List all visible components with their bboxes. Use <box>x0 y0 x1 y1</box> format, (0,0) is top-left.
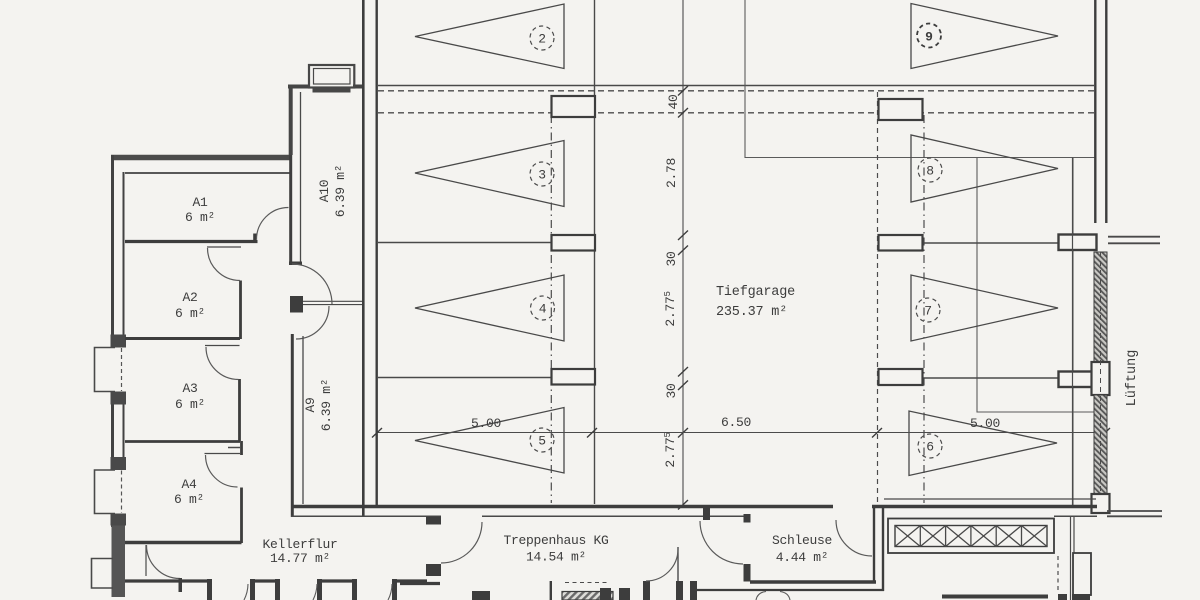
svg-text:6 m²: 6 m² <box>174 492 204 507</box>
svg-text:4: 4 <box>539 302 547 317</box>
svg-text:2.775: 2.775 <box>663 432 678 467</box>
svg-text:6: 6 <box>926 440 934 455</box>
svg-text:A3: A3 <box>182 381 197 396</box>
svg-text:7: 7 <box>924 304 932 319</box>
svg-text:5.00: 5.00 <box>471 416 501 431</box>
svg-text:3: 3 <box>538 168 546 183</box>
svg-text:235.37 m²: 235.37 m² <box>716 305 787 320</box>
svg-text:A9: A9 <box>303 397 318 412</box>
svg-text:6 m²: 6 m² <box>175 306 205 321</box>
svg-text:8: 8 <box>926 164 934 179</box>
svg-text:2.78: 2.78 <box>664 158 679 188</box>
svg-text:4.44 m²: 4.44 m² <box>776 550 829 565</box>
svg-text:6 m²: 6 m² <box>185 210 215 225</box>
svg-text:5: 5 <box>538 434 546 449</box>
svg-text:A4: A4 <box>181 477 197 492</box>
svg-text:Treppenhaus KG: Treppenhaus KG <box>503 533 608 548</box>
svg-text:6.39 m²: 6.39 m² <box>319 379 334 432</box>
svg-text:A2: A2 <box>182 290 197 305</box>
svg-text:A1: A1 <box>192 195 208 210</box>
svg-text:30: 30 <box>664 383 679 398</box>
svg-text:9: 9 <box>925 30 933 45</box>
svg-text:14.54 m²: 14.54 m² <box>526 550 586 565</box>
svg-text:40: 40 <box>666 94 681 109</box>
svg-text:Lüftung: Lüftung <box>1125 350 1140 407</box>
svg-text:Kellerflur: Kellerflur <box>262 537 337 552</box>
svg-text:6.39 m²: 6.39 m² <box>333 165 348 218</box>
svg-text:5.00: 5.00 <box>970 416 1000 431</box>
svg-text:Tiefgarage: Tiefgarage <box>716 285 795 300</box>
svg-text:14.77 m²: 14.77 m² <box>270 551 330 566</box>
svg-text:6 m²: 6 m² <box>175 397 205 412</box>
svg-text:30: 30 <box>664 251 679 266</box>
svg-text:A10: A10 <box>317 180 332 203</box>
svg-text:Schleuse: Schleuse <box>772 533 832 548</box>
svg-text:2: 2 <box>538 32 546 47</box>
svg-text:2.775: 2.775 <box>663 291 678 326</box>
svg-text:6.50: 6.50 <box>721 415 751 430</box>
